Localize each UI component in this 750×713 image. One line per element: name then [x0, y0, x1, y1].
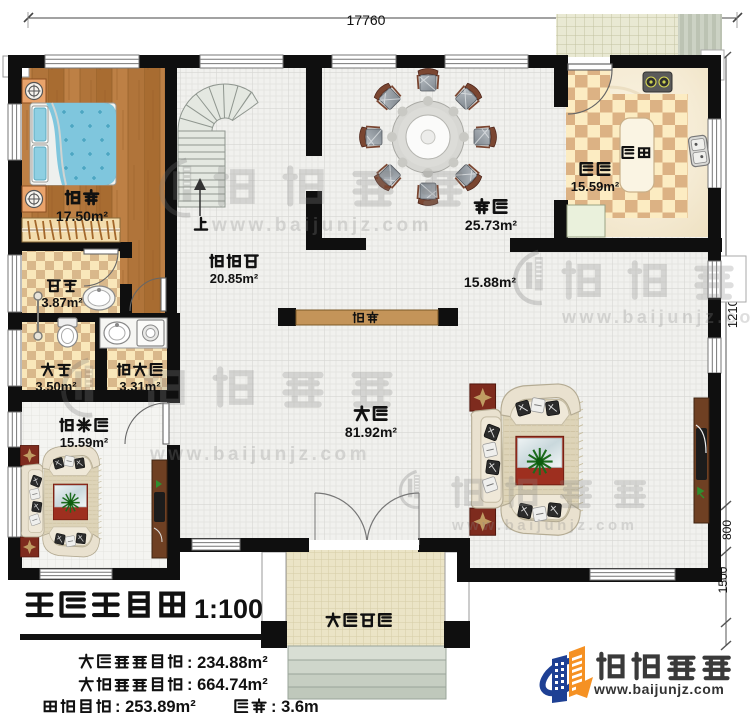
svg-text:3.50m²: 3.50m² [35, 379, 77, 394]
svg-text:81.92m²: 81.92m² [345, 424, 397, 440]
svg-text:20.85m²: 20.85m² [210, 271, 259, 286]
svg-text:25.73m²: 25.73m² [465, 217, 517, 233]
svg-text:15.88m²: 15.88m² [464, 274, 516, 290]
svg-text:: 234.88m²: : 234.88m² [187, 654, 268, 672]
svg-text:17760: 17760 [347, 12, 386, 28]
svg-text:800: 800 [720, 520, 734, 540]
svg-text:15.59m²: 15.59m² [571, 179, 620, 194]
svg-text:www.baijunjz.com: www.baijunjz.com [149, 444, 370, 465]
svg-text:3.87m²: 3.87m² [41, 295, 83, 310]
svg-text:3.31m²: 3.31m² [119, 379, 161, 394]
svg-text:: 664.74m²: : 664.74m² [187, 676, 268, 694]
svg-text:1:100: 1:100 [194, 594, 263, 624]
svg-text:15.59m²: 15.59m² [60, 435, 109, 450]
svg-text:www.baijunjz.com: www.baijunjz.com [593, 681, 724, 697]
svg-text:www.baijunjz.com: www.baijunjz.com [561, 307, 750, 327]
svg-text:www.baijunjz.com: www.baijunjz.com [211, 215, 432, 236]
svg-text:www.baijunjz.com: www.baijunjz.com [451, 517, 637, 534]
svg-text:: 3.6m: : 3.6m [271, 698, 319, 713]
svg-text:17.50m²: 17.50m² [56, 208, 108, 224]
svg-text:: 253.89m²: : 253.89m² [115, 698, 196, 713]
